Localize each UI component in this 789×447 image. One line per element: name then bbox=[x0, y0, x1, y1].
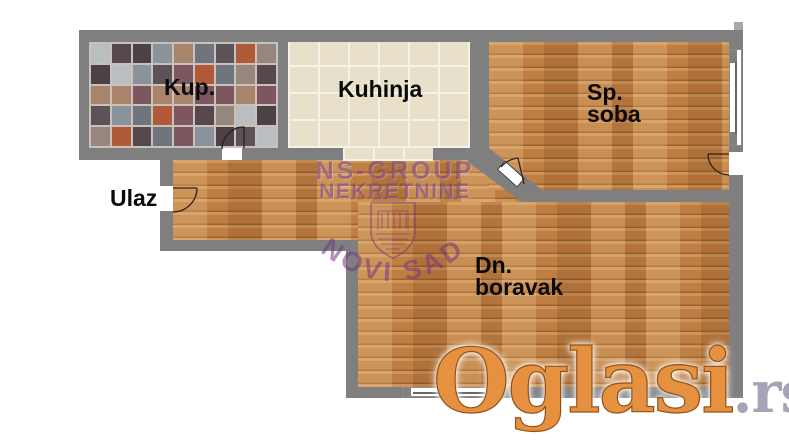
portal-watermark-suffix: .rs bbox=[733, 359, 789, 426]
bathroom-tile bbox=[195, 127, 214, 146]
bathroom-tile bbox=[91, 106, 110, 125]
wall-bathroom-bottom-a bbox=[79, 148, 222, 160]
bathroom-tile bbox=[216, 44, 235, 63]
terrace-door-opening bbox=[729, 152, 743, 175]
bathroom-tile bbox=[236, 65, 255, 84]
bathroom-tile bbox=[174, 106, 193, 125]
bathroom-label: Kup. bbox=[164, 76, 215, 98]
wall-bathroom-kitchen-divider bbox=[278, 38, 288, 150]
bathroom-tile bbox=[91, 127, 110, 146]
wall-corner-nub bbox=[734, 22, 743, 30]
wall-living-left bbox=[346, 240, 358, 398]
window-cap bbox=[403, 388, 411, 396]
bathroom-tile bbox=[257, 127, 276, 146]
bathroom-tile bbox=[153, 44, 172, 63]
portal-watermark: Oglasi.rs bbox=[433, 329, 789, 433]
bathroom-door-opening bbox=[222, 148, 242, 160]
bathroom-tile bbox=[133, 127, 152, 146]
bathroom-tile bbox=[216, 127, 235, 146]
bathroom-tile bbox=[257, 106, 276, 125]
bathroom-tile bbox=[174, 127, 193, 146]
bathroom-tile bbox=[236, 106, 255, 125]
bathroom-tile bbox=[257, 86, 276, 105]
wall-bathroom-left bbox=[79, 30, 89, 160]
bathroom-tile bbox=[216, 106, 235, 125]
wall-hall-left-a bbox=[160, 150, 173, 186]
bathroom-tile bbox=[236, 127, 255, 146]
bathroom-tile bbox=[112, 127, 131, 146]
floor-plan: NS-GROUP NEKRETNINE bbox=[0, 0, 789, 447]
wall-bedroom-bottom bbox=[530, 190, 743, 202]
bathroom-tile bbox=[112, 65, 131, 84]
wall-top bbox=[79, 30, 743, 42]
living-room-label: Dn. boravak bbox=[475, 254, 563, 298]
bathroom-tile bbox=[91, 65, 110, 84]
bathroom-tile bbox=[153, 127, 172, 146]
bathroom-tile bbox=[236, 44, 255, 63]
bathroom-tile bbox=[112, 86, 131, 105]
bathroom-tile bbox=[216, 86, 235, 105]
window-glass-line bbox=[735, 62, 737, 134]
entrance-label: Ulaz bbox=[110, 187, 157, 209]
bathroom-tile bbox=[257, 44, 276, 63]
bathroom-tile bbox=[91, 44, 110, 63]
kitchen-label: Kuhinja bbox=[338, 78, 422, 100]
bathroom-tile bbox=[216, 65, 235, 84]
bathroom-tile bbox=[133, 44, 152, 63]
wall-hall-bottom bbox=[160, 240, 358, 251]
bathroom-tile bbox=[195, 44, 214, 63]
bathroom-tile bbox=[91, 86, 110, 105]
portal-watermark-text: Oglasi bbox=[433, 329, 733, 433]
bedroom-window bbox=[729, 49, 742, 146]
bathroom-tile bbox=[236, 86, 255, 105]
bathroom-tile bbox=[133, 106, 152, 125]
bathroom-tile bbox=[195, 106, 214, 125]
bathroom-tile bbox=[112, 106, 131, 125]
bathroom-tile bbox=[257, 65, 276, 84]
bathroom-tile bbox=[133, 86, 152, 105]
entrance-door-opening bbox=[160, 186, 173, 211]
wall-kitchen-bedroom-divider bbox=[470, 38, 489, 153]
bathroom-tile bbox=[153, 106, 172, 125]
bedroom-label: Sp. soba bbox=[587, 81, 641, 125]
bathroom-tile bbox=[112, 44, 131, 63]
agency-watermark-line2: NEKRETNINE bbox=[300, 180, 490, 204]
bathroom-tile bbox=[133, 65, 152, 84]
bathroom-tile bbox=[174, 44, 193, 63]
